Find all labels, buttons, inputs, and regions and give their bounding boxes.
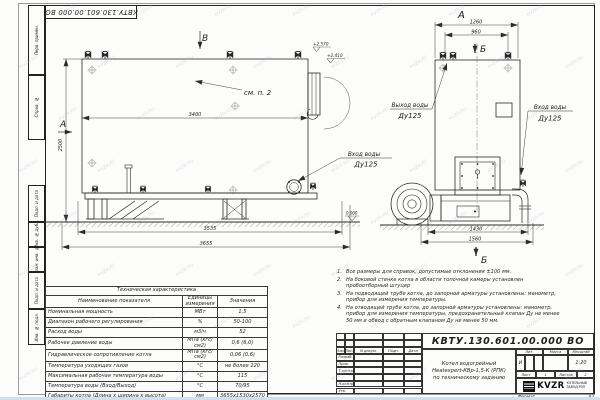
param-units: МПа (кгс/см2) [183, 349, 218, 361]
tb-cell [404, 333, 422, 340]
tb-cell [354, 374, 383, 381]
view-label-B: В [202, 34, 208, 44]
tb-cell [525, 355, 534, 371]
table-row: Рабочее давление водыМПа (кгс/см2)0,6 (6… [46, 338, 268, 350]
col-header-name: Наименование показателя [46, 296, 183, 308]
mass-value [543, 355, 568, 371]
tech-table: Техническая характеристика Наименование … [45, 286, 268, 397]
format-value: А3 [588, 394, 594, 397]
drawing-sheet: Перв. примен. Справ. № Подп. и дата Инв.… [0, 0, 600, 397]
title-block: Изм. Лист N докум. Подп. Дата Разраб. Пр… [336, 333, 594, 394]
tb-cell [383, 381, 404, 388]
drain-valve-icon [310, 183, 315, 190]
tb-cell [404, 340, 422, 347]
tb-cell [354, 354, 383, 361]
inlet-dn-label: Ду125 [354, 161, 379, 169]
col-header-values: Значения [218, 296, 268, 308]
tb-cell [404, 367, 422, 374]
scale-value: 1:20 [568, 355, 594, 371]
document-number: КВТУ.130.601.00.000 ВО [422, 333, 594, 349]
margin-label: Подп. и дата [34, 277, 39, 304]
doc-name-line: по техническому заданию [433, 375, 505, 382]
param-value: 115 [218, 371, 268, 381]
table-row: Температура воды (Вход/Выход)°С70/95 [46, 381, 268, 391]
inlet-label: Вход воды [348, 152, 381, 158]
table-row: Расход водым3/ч52 [46, 328, 268, 338]
tb-cell [345, 333, 354, 340]
tb-cell [383, 333, 404, 340]
lifting-point-icon [229, 66, 238, 75]
tb-cell [354, 381, 383, 388]
param-units: МПа (кгс/см2) [183, 338, 218, 350]
tb-cell [404, 388, 422, 395]
table-row: Диапазон рабочего регулирования%50-100 [46, 318, 268, 328]
elevation-mark-top: +2.570 [313, 42, 329, 47]
safety-valve-icon [102, 51, 108, 59]
param-name: Номинальная мощность [46, 308, 183, 318]
tb-row-nkontr: Н.контр. [336, 381, 354, 388]
company-logo: KVZR КОТЕЛЬНЫЙ ЗАВОД РЭП [523, 381, 587, 392]
dim-1430: 1430 [470, 227, 483, 233]
note-item: 3.На подводящей трубе котла, до запорной… [337, 291, 563, 304]
margin-label: Взам. инв. № [34, 246, 39, 274]
dim-3535: 3535 [204, 226, 217, 232]
notes-block: 1.Все размеры для справок, допустимые от… [337, 269, 563, 325]
section-label-B-bottom: Б [481, 256, 487, 266]
door-handle-icon [475, 170, 479, 174]
top-stamp-number: КВТУ.130.601.00.000 ВО [45, 8, 138, 16]
tb-cell [354, 333, 383, 340]
tb-cell [383, 354, 404, 361]
top-stamp: КВТУ.130.601.00.000 ВО [45, 5, 137, 19]
sheets-value: 2 [577, 371, 594, 378]
door-swing-arc [324, 77, 350, 129]
param-units: °С [183, 371, 218, 381]
dim-1560: 1560 [469, 237, 482, 243]
outlet-nozzle-icon [450, 52, 456, 60]
outlet-dn-label: Ду125 [398, 112, 423, 120]
lifting-point-icon [88, 66, 97, 75]
param-value: 50-100 [218, 318, 268, 328]
document-name: Котел водогрейный Heatexpert-КВр-1,5-К (… [422, 349, 516, 394]
blower-fan [391, 183, 441, 225]
table-row: Номинальная мощностьМВт1,5 [46, 308, 268, 318]
front-view [380, 43, 544, 230]
lifting-point-icon [439, 64, 448, 73]
tb-row-tkontr: Т.контр. [336, 367, 354, 374]
param-value: 52 [218, 328, 268, 338]
pipe-valve-icon [520, 180, 525, 187]
inlet-dn-label-front: Ду125 [538, 115, 563, 123]
note-text: На отводящей трубе котла, до запорной ар… [346, 305, 563, 325]
table-row: Гидравлическое сопротивление котлаМПа (к… [46, 349, 268, 361]
note-number: 4. [337, 305, 346, 325]
param-units: МВт [183, 308, 218, 318]
margin-label: Инв. № дубл. [34, 220, 39, 248]
view-label-A-arrow: А [59, 120, 66, 130]
safety-valve-icon [295, 51, 301, 59]
param-value: 3655х1530х2570 [218, 391, 268, 397]
note-number: 1. [337, 269, 346, 276]
tb-cell [404, 361, 422, 368]
param-value: не более 220 [218, 361, 268, 371]
margin-cell-podp-data-2: Подп. и дата [28, 272, 45, 309]
note-text: На подводящей трубе котла, до запорной а… [346, 291, 563, 304]
tb-cell [354, 361, 383, 368]
tb-cell [354, 340, 383, 347]
tb-col-podp: Подп. [383, 347, 404, 354]
margin-cell-inv-podl: Инв. № подл. [28, 309, 45, 345]
table-title-row: Техническая характеристика [46, 287, 268, 296]
note-item: 1.Все размеры для справок, допустимые от… [337, 269, 563, 276]
water-inlet-flange [287, 180, 301, 194]
grate-logo-icon [523, 381, 535, 392]
dim-3655: 3655 [200, 241, 213, 247]
tb-cell [383, 388, 404, 395]
logo-text: KVZR [537, 381, 564, 391]
tb-cell [383, 367, 404, 374]
tb-cell [404, 381, 422, 388]
tb-col-ndokum: N докум. [354, 347, 383, 354]
tb-col-izm: Изм. [336, 347, 345, 354]
tb-cell [534, 355, 543, 371]
format-label: Формат [518, 394, 535, 397]
tb-row-razrab: Разраб. [336, 354, 354, 361]
table-title: Техническая характеристика [46, 287, 268, 296]
side-opening [496, 103, 512, 117]
param-name: Температура воды (Вход/Выход) [46, 381, 183, 391]
elevation-mark-zero: 0.000 [346, 211, 358, 216]
param-name: Температура уходящих газов [46, 361, 183, 371]
drawing-views: В А см. п. 2 3400 2500 3535 3655 +2.570 … [42, 5, 595, 270]
safety-valve-icon [227, 51, 233, 59]
view-label-A: А [457, 10, 465, 21]
lit-value: И [516, 355, 525, 371]
inlet-pipe [512, 180, 531, 223]
table-header-row: Наименование показателя Единицы измерени… [46, 296, 268, 308]
format-strip: Формат А3 [518, 394, 594, 397]
dim-1260: 1260 [470, 20, 483, 26]
param-units: °С [183, 361, 218, 371]
lifting-point-icon [504, 64, 513, 73]
col-header-units: Единицы измерения [183, 296, 218, 308]
tb-cell [336, 333, 345, 340]
boiler-body-side [82, 59, 308, 193]
furnace-door [455, 157, 500, 195]
side-view [45, 51, 360, 227]
param-name: Гидравлическое сопротивление котла [46, 349, 183, 361]
tb-cell [354, 367, 383, 374]
boiler-body-front [435, 60, 520, 190]
param-name: Габариты котла (Длина х ширина х высота) [46, 391, 183, 397]
param-units: мм [183, 391, 218, 397]
tb-cell [383, 361, 404, 368]
doc-name-line: Котел водогрейный [442, 361, 496, 368]
burner-block [441, 195, 510, 221]
param-name: Рабочее давление воды [46, 338, 183, 350]
param-value: 70/95 [218, 381, 268, 391]
note-number: 2. [337, 277, 346, 290]
margin-label: Перв. примен. [34, 25, 39, 55]
note-number: 3. [337, 291, 346, 304]
logo-caption: КОТЕЛЬНЫЙ ЗАВОД РЭП [567, 382, 587, 389]
doc-name-line: Heatexpert-КВр-1,5-К (РПК) [432, 368, 506, 375]
section-label-B-top: Б [480, 45, 486, 55]
safety-valve-icon [85, 51, 91, 59]
sheets-label: Листов [555, 371, 577, 378]
drain-valve-icon [92, 186, 97, 193]
tb-cell [383, 340, 404, 347]
tb-col-data: Дата [404, 347, 422, 354]
drain-valve-icon [140, 186, 145, 193]
note-item: 4.На отводящей трубе котла, до запорной … [337, 305, 563, 325]
param-value: 0,06 (0,6) [218, 349, 268, 361]
tb-row-prov: Пров. [336, 361, 354, 368]
param-name: Максимальная рабочая температура воды [46, 371, 183, 381]
sheet-value: 1 [536, 371, 555, 378]
lifting-point-icon [231, 102, 240, 111]
param-value: 1,5 [218, 308, 268, 318]
margin-label: Подп. и дата [34, 190, 39, 217]
outlet-label: Выход воды [392, 103, 429, 109]
tb-cell [354, 388, 383, 395]
tb-row-blank [336, 374, 354, 381]
see-note-ref: см. п. 2 [244, 89, 272, 97]
tb-cell [345, 340, 354, 347]
margin-label: Справ. № [34, 97, 39, 117]
dim-960: 960 [471, 30, 481, 36]
param-name: Диапазон рабочего регулирования [46, 318, 183, 328]
table-row: Габариты котла (Длина х ширина х высота)… [46, 391, 268, 397]
tb-cell [383, 374, 404, 381]
sheet-label: Лист [516, 371, 536, 378]
elevation-mark-mid: +2.410 [327, 53, 343, 58]
table-row: Максимальная рабочая температура воды°С1… [46, 371, 268, 381]
note-text: На боковой стенке котла в области топочн… [346, 277, 563, 290]
tb-row-utv: Утв. [336, 388, 354, 395]
company-logo-cell: KVZR КОТЕЛЬНЫЙ ЗАВОД РЭП [516, 378, 594, 394]
drain-valve-icon [205, 186, 210, 193]
side-view-texts: В А см. п. 2 3400 2500 3535 3655 +2.570 … [58, 34, 381, 247]
table-row: Температура уходящих газов°Сне более 220 [46, 361, 268, 371]
tb-cell [336, 340, 345, 347]
margin-label: Инв. № подл. [34, 313, 39, 341]
tb-col-list: Лист [345, 347, 354, 354]
note-text: Все размеры для справок, допустимые откл… [346, 269, 563, 276]
lifting-point-icon [88, 159, 97, 168]
inlet-label-front: Вход воды [534, 105, 567, 111]
note-item: 2.На боковой стенке котла в области топо… [337, 277, 563, 290]
param-value: 0,6 (6,0) [218, 338, 268, 350]
param-units: м3/ч [183, 328, 218, 338]
tb-cell [404, 374, 422, 381]
logo-caption-line: ЗАВОД РЭП [567, 386, 587, 390]
dim-2500: 2500 [58, 139, 64, 152]
param-units: % [183, 318, 218, 328]
dim-3400: 3400 [189, 112, 202, 118]
tb-cell [404, 354, 422, 361]
param-name: Расход воды [46, 328, 183, 338]
param-units: °С [183, 381, 218, 391]
